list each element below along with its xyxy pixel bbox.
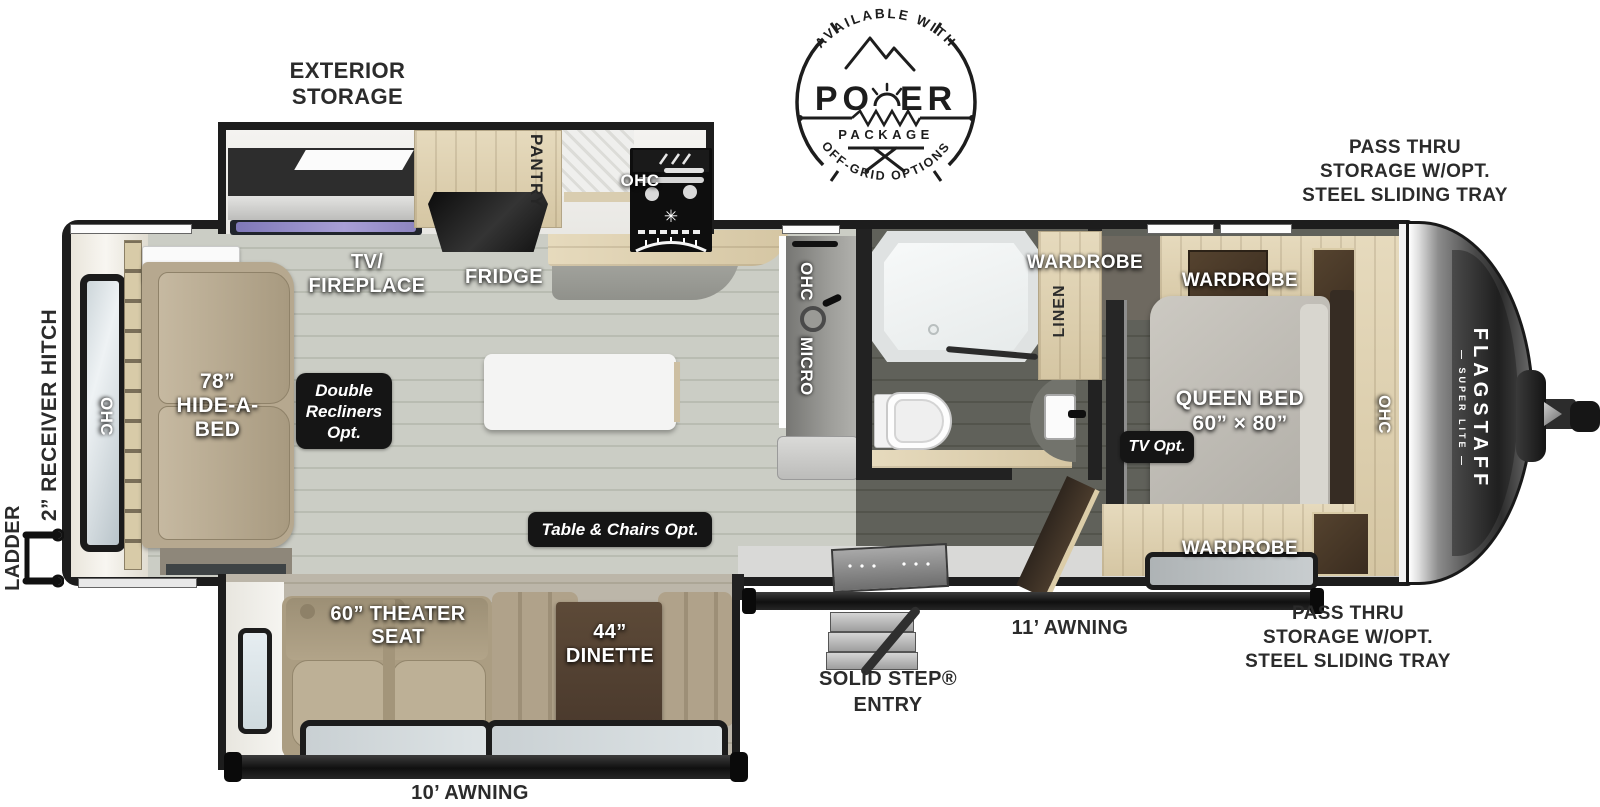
badge-package: PACKAGE: [838, 127, 934, 142]
awning-end-cap: [742, 588, 756, 614]
hitch-coupler: [1570, 401, 1600, 432]
badge-arc-bottom: OFF-GRID OPTIONS: [819, 139, 953, 183]
dishwasher: [777, 436, 859, 480]
linen-label: LINEN: [1051, 261, 1073, 361]
sofa-arm-slats: [124, 240, 142, 570]
storage-shelf-silver: [228, 196, 424, 220]
shower-drain: [928, 324, 939, 335]
rear-ohc-label: OHC: [92, 386, 116, 446]
micro-label: MICRO: [792, 324, 816, 408]
kitchen-island: [484, 354, 676, 430]
toilet-seat: [894, 399, 944, 443]
bedroom-wardrobe-bottom-label: WARDROBE: [1156, 538, 1324, 560]
badge-title-po: PO: [815, 80, 874, 118]
awning-end-cap: [730, 752, 748, 782]
awning-roller-slide-side: [226, 755, 748, 779]
shower-pan: [884, 243, 1028, 350]
rear-top-window: [70, 224, 192, 234]
bedroom-ohc-label: OHC: [1370, 386, 1394, 442]
bedroom-wardrobe-top-label: WARDROBE: [1156, 270, 1324, 292]
solid-step-entry-label: SOLID STEP® ENTRY: [798, 666, 978, 718]
kitchen-ohc-label: OHC: [614, 171, 666, 191]
dinette-bench: [658, 592, 732, 726]
bedroom-top-window: [1220, 224, 1292, 234]
galley-counter-edge: [779, 236, 786, 428]
receiver-hitch-label: 2” RECEIVER HITCH: [37, 300, 63, 530]
bedroom-top-window: [1147, 224, 1214, 234]
awning-door-side-label: 11’ AWNING: [980, 616, 1160, 641]
rear-bottom-window: [78, 578, 197, 588]
dinette-label: 44” DINETTE: [558, 620, 662, 668]
brand-series: — SUPER LITE —: [1457, 279, 1467, 539]
front-cap-brand: FLAGSTAFF — SUPER LITE —: [1445, 279, 1491, 539]
tv-fireplace-label: TV/ FIREPLACE: [298, 250, 436, 298]
vanity-faucet: [1068, 410, 1086, 418]
galley-handle: [792, 241, 838, 247]
awning-slide-side-label: 10’ AWNING: [378, 781, 562, 806]
bed-tv-wall: [1106, 300, 1127, 526]
galley-ohc-label: OHC: [792, 254, 816, 308]
awning-end-cap: [224, 752, 242, 782]
table-chairs-badge: Table & Chairs Opt.: [528, 512, 712, 547]
bath-step: [872, 450, 1072, 468]
griddle-burner-dots: [844, 562, 884, 570]
hitch-jack: [1516, 370, 1546, 462]
pantry-label: PANTRY: [520, 134, 546, 230]
tv-fireplace-screen: [236, 222, 416, 232]
brand-name: FLAGSTAFF: [1468, 279, 1491, 539]
fridge-label: FRIDGE: [438, 266, 570, 290]
pass-thru-front-lower-label: PASS THRU STORAGE W/OPT. STEEL SLIDING T…: [1233, 602, 1463, 674]
counter-wood-shelf: [564, 192, 632, 202]
hide-a-bed-label: 78” HIDE-A- BED: [150, 370, 285, 442]
double-recliners-badge: Double Recliners Opt.: [296, 373, 392, 449]
svg-text:✳: ✳: [664, 207, 678, 226]
galley-top-window: [782, 225, 840, 234]
floor-plan: OHC 78” HIDE-A- BED OHC MICRO LINEN WARD…: [0, 0, 1600, 807]
bath-wardrobe-label: WARDROBE: [1010, 252, 1160, 274]
theater-seat-label: 60” THEATER SEAT: [312, 603, 484, 649]
exterior-storage-label: EXTERIOR STORAGE: [240, 58, 455, 110]
queen-bed-label: QUEEN BED 60” × 80”: [1154, 386, 1326, 436]
entry-steps: [828, 632, 916, 652]
svg-text:OFF-GRID OPTIONS: OFF-GRID OPTIONS: [819, 139, 953, 183]
griddle-burner-dots: [898, 560, 938, 568]
storage-window-slit: [294, 150, 414, 170]
slide-end-window: [238, 628, 272, 734]
power-package-badge: AVAILABLE WITH PO ER PACKAGE OFF-GRID OP…: [788, 2, 984, 206]
tv-opt-badge: TV Opt.: [1120, 431, 1194, 463]
ladder-label: LADDER: [1, 488, 25, 608]
island-wood-edge: [674, 362, 680, 422]
range-cooktop: ✳: [630, 148, 712, 252]
pass-thru-front-upper-label: PASS THRU STORAGE W/OPT. STEEL SLIDING T…: [1290, 136, 1520, 208]
bath-wall-left: [856, 229, 872, 480]
